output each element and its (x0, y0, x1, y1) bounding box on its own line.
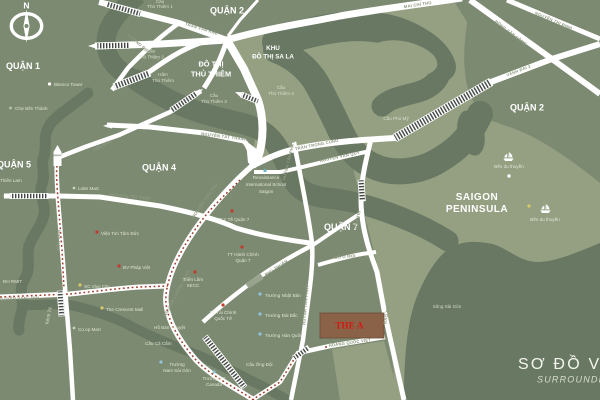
svg-text:BV Pháp Việt: BV Pháp Việt (123, 265, 151, 270)
svg-text:QUẬN 2: QUẬN 2 (210, 5, 244, 16)
svg-text:TT Tài Chính: TT Tài Chính (210, 310, 237, 315)
svg-text:Quốc Tế: Quốc Tế (214, 316, 232, 321)
svg-text:TT Hành Chính: TT Hành Chính (227, 252, 259, 257)
svg-text:SURROUNDING: SURROUNDING (537, 375, 600, 385)
svg-text:Cầu Ông Đội: Cầu Ông Đội (246, 361, 273, 367)
svg-text:Quận 7: Quận 7 (235, 258, 251, 263)
svg-text:KHU: KHU (266, 45, 280, 52)
svg-text:TÔN ĐẢN: TÔN ĐẢN (56, 230, 62, 251)
svg-text:QUẬN 5: QUẬN 5 (0, 159, 31, 170)
svg-text:Cầu: Cầu (277, 85, 286, 90)
svg-text:Trường: Trường (169, 362, 185, 367)
svg-text:Trường Hàn Quốc: Trường Hàn Quốc (265, 333, 303, 338)
svg-text:Co.op Mart: Co.op Mart (78, 327, 101, 332)
svg-text:Cầu: Cầu (147, 49, 156, 54)
svg-text:International School: International School (246, 182, 287, 187)
svg-text:Bến du thuyền: Bến du thuyền (530, 217, 560, 222)
svg-text:Thủ Thiêm 4: Thủ Thiêm 4 (268, 90, 294, 96)
svg-text:Bến du thuyền: Bến du thuyền (494, 164, 524, 169)
svg-text:Cầu Cả Cấm: Cầu Cả Cấm (145, 341, 172, 346)
svg-text:QUẬN 2: QUẬN 2 (510, 102, 544, 113)
svg-text:Viện Tim Tâm Đức: Viện Tim Tâm Đức (101, 231, 140, 236)
svg-text:QUẬN 1: QUẬN 1 (6, 60, 40, 71)
svg-text:Canada: Canada (206, 382, 223, 387)
svg-text:Thủ Thiêm 1: Thủ Thiêm 1 (147, 3, 173, 9)
svg-text:Saigon: Saigon (259, 189, 274, 194)
svg-text:Chợ Bến Thành: Chợ Bến Thành (15, 106, 48, 111)
svg-text:Sông Sài Gòn: Sông Sài Gòn (433, 304, 462, 309)
svg-text:Hầm: Hầm (158, 72, 168, 77)
svg-text:QUẬN 4: QUẬN 4 (142, 162, 176, 173)
svg-text:Thiên Lam: Thiên Lam (0, 178, 22, 183)
svg-text:Thủ Thiêm 2: Thủ Thiêm 2 (138, 54, 164, 60)
svg-text:ĐÔ THỊ: ĐÔ THỊ (198, 60, 223, 69)
svg-text:SƠ ĐỒ VỊ TRÍ: SƠ ĐỒ VỊ TRÍ (518, 354, 600, 373)
svg-text:ĐH RMIT: ĐH RMIT (3, 279, 22, 284)
svg-text:PENINSULA: PENINSULA (446, 204, 508, 215)
svg-text:ĐÔ THỊ SA LA: ĐÔ THỊ SA LA (252, 52, 294, 61)
svg-text:N: N (23, 1, 29, 11)
svg-text:Cầu Phú Mỹ: Cầu Phú Mỹ (383, 116, 409, 121)
svg-text:Trường Đài Bắc: Trường Đài Bắc (265, 312, 298, 318)
svg-text:THỦ THIÊM: THỦ THIÊM (191, 70, 231, 79)
svg-text:SECC: SECC (187, 283, 200, 288)
svg-text:Thủ Thiêm 3: Thủ Thiêm 3 (201, 98, 227, 104)
svg-text:SC Vivo City: SC Vivo City (84, 284, 110, 289)
svg-text:Hồ Bán Nguyệt: Hồ Bán Nguyệt (154, 325, 186, 330)
svg-text:Lotte Mart: Lotte Mart (78, 186, 99, 191)
svg-text:THE A: THE A (335, 321, 364, 331)
svg-text:Trường QT: Trường QT (202, 376, 225, 381)
svg-text:Trường Nhật Bản: Trường Nhật Bản (265, 293, 301, 298)
svg-text:TT Y Tế Quận 7: TT Y Tế Quận 7 (217, 217, 250, 222)
svg-text:Renaissance: Renaissance (253, 175, 280, 180)
svg-text:Bitexco Tower: Bitexco Tower (54, 82, 83, 87)
svg-text:Triển Lãm: Triển Lãm (183, 276, 204, 282)
svg-text:The Crescent Mall: The Crescent Mall (106, 307, 143, 312)
svg-text:Cầu: Cầu (210, 93, 219, 98)
svg-text:Thủ Thiêm: Thủ Thiêm (152, 77, 174, 83)
svg-text:Nam Sài Gòn: Nam Sài Gòn (163, 368, 191, 373)
svg-text:SAIGON: SAIGON (456, 192, 498, 203)
